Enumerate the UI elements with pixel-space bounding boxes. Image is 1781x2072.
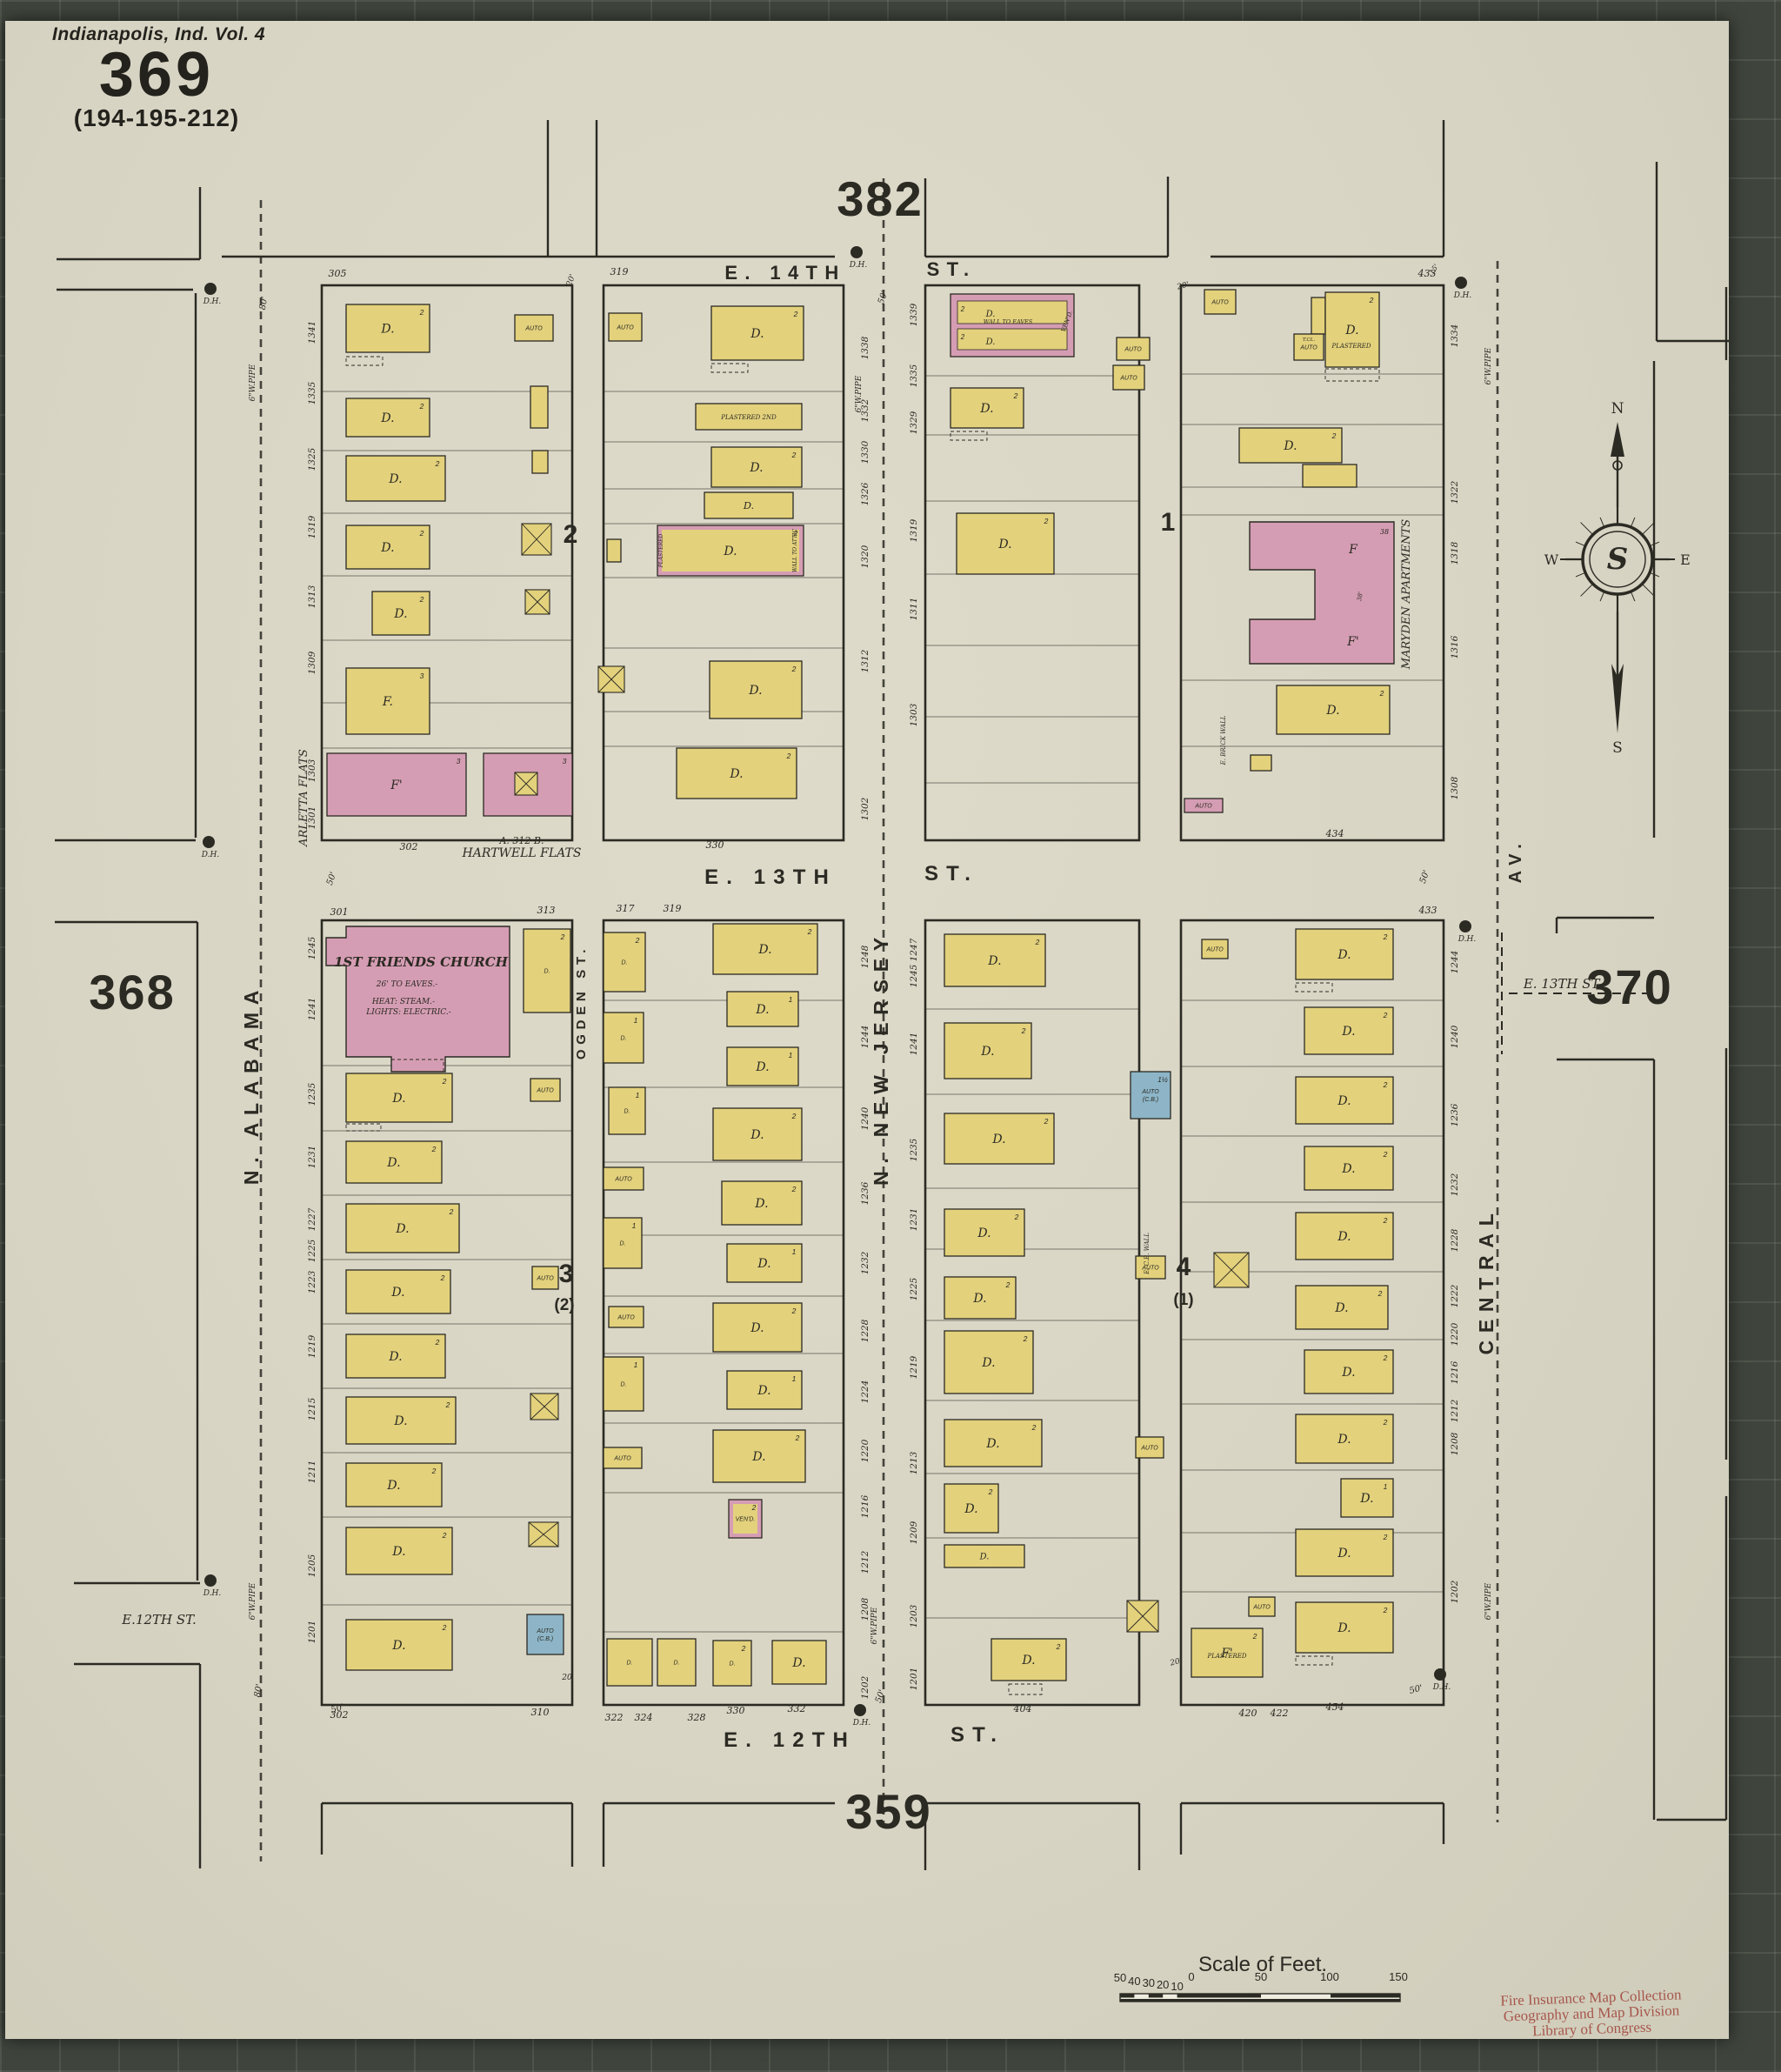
dh-hydrant-dot: [1459, 920, 1471, 932]
dwelling-label: D.: [390, 1286, 404, 1300]
house-number: 454: [1325, 1701, 1344, 1713]
house-number: 1335: [307, 381, 317, 404]
dwelling-label: D.: [1337, 1230, 1351, 1244]
block-number: 4: [1177, 1253, 1191, 1281]
adjacent-sheet-number: 359: [845, 1784, 931, 1839]
street-name: ST.: [951, 1723, 1004, 1747]
story-count: 2: [807, 927, 812, 936]
compass-north-label: N: [1611, 400, 1624, 418]
story-count: 2: [1044, 517, 1049, 525]
building-footprint: [1251, 755, 1271, 771]
story-count: 1: [792, 1374, 797, 1383]
house-number: 1211: [307, 1460, 317, 1484]
house-number: 1236: [1450, 1103, 1460, 1126]
street-name: N. NEW JERSEY: [870, 930, 892, 1186]
house-number: 1220: [860, 1439, 870, 1462]
house-number: 1216: [860, 1494, 870, 1518]
sheet-title-block: Indianapolis, Ind. Vol. 4 369 (194-195-2…: [52, 24, 261, 132]
story-count: 1: [792, 1247, 797, 1256]
dh-hydrant-label: D.H.: [203, 297, 222, 306]
house-number: 1220: [1450, 1322, 1460, 1346]
dwelling-label: D.: [386, 1156, 400, 1170]
house-number: 1228: [1450, 1228, 1460, 1252]
dh-hydrant-label: D.H.: [203, 1589, 222, 1598]
compass-east-label: E: [1680, 551, 1691, 568]
dwelling-label: D.: [1334, 1301, 1348, 1315]
story-count: 3: [563, 757, 567, 765]
compass-needle-north: [1611, 422, 1624, 457]
garage-label: AUTO: [617, 1314, 635, 1320]
house-number: 1216: [1450, 1360, 1460, 1384]
story-count: 2: [1035, 938, 1040, 946]
dwelling-label: D.: [391, 1639, 405, 1653]
story-count: 2: [988, 1487, 993, 1496]
annotation: 50': [874, 1688, 888, 1704]
garage-label: AUTO: [536, 1628, 554, 1634]
library-of-congress-stamp: Fire Insurance Map Collection Geography …: [1477, 1986, 1705, 2041]
story-count: 2: [1252, 1632, 1257, 1641]
scale-bar-segment: [1120, 1994, 1134, 1998]
dwelling-label: D.: [748, 684, 762, 698]
dh-hydrant-dot: [1455, 277, 1467, 289]
garage-label: (C.B.): [537, 1636, 553, 1642]
annotation: 20': [1175, 280, 1190, 292]
scale-tick-label: 100: [1320, 1970, 1339, 1983]
garage-label: AUTO: [1140, 1445, 1158, 1451]
house-number: 1244: [860, 1026, 870, 1049]
dwelling-label: D.: [1337, 1433, 1351, 1447]
compass-spoke: [1581, 523, 1593, 535]
annotation: WALL TO EAVES: [984, 318, 1033, 325]
house-number: 301: [330, 906, 349, 918]
annotation: PLASTERED: [1207, 1653, 1247, 1660]
dh-hydrant-dot: [854, 1704, 866, 1716]
dwelling-label: D.: [380, 411, 394, 425]
house-number: 1313: [307, 585, 317, 608]
house-number: 1329: [909, 411, 919, 434]
annotation: 6"W.PIPE: [1484, 347, 1493, 384]
house-number: 1215: [307, 1397, 317, 1420]
house-number: 1228: [860, 1319, 870, 1342]
story-count: 2: [1379, 689, 1384, 698]
house-number: 313: [537, 905, 556, 916]
dwelling-label: D.: [977, 1226, 991, 1240]
story-count: 2: [1005, 1280, 1011, 1289]
story-count: 2: [445, 1400, 450, 1409]
dwelling-label: F.: [382, 695, 393, 709]
story-count: 2: [1383, 1418, 1388, 1427]
dh-hydrant-label: D.H.: [852, 1719, 871, 1728]
scale-tick-label: 50: [1255, 1970, 1267, 1983]
annotation: 80': [258, 296, 270, 311]
story-count: 2: [793, 310, 798, 318]
house-number: 434: [1325, 828, 1344, 839]
story-count: 1: [632, 1221, 637, 1230]
story-count: 1: [1384, 1482, 1388, 1491]
house-number: 1240: [860, 1106, 870, 1130]
dwelling-label: D.: [751, 1450, 765, 1464]
story-count: 2: [449, 1207, 454, 1216]
porch-outline: [1325, 369, 1379, 381]
porch-outline: [711, 364, 748, 372]
garage-label: (C.B.): [1143, 1097, 1158, 1103]
dwelling-label: D.: [757, 943, 771, 957]
dwelling-label: D.: [386, 1479, 400, 1493]
house-number: 1202: [860, 1675, 870, 1699]
house-number: 332: [788, 1703, 806, 1714]
dwelling-label: D.: [1341, 1162, 1355, 1176]
house-number: 1202: [1450, 1580, 1460, 1603]
dwelling-label: D.: [1337, 948, 1351, 962]
story-count: 2: [435, 459, 440, 468]
compass-west-label: W: [1544, 551, 1559, 568]
story-count: 2: [1021, 1026, 1026, 1035]
compass-spoke: [1600, 592, 1604, 601]
story-count: 2: [1383, 1080, 1388, 1089]
story-count: 2: [442, 1531, 447, 1540]
scale-tick-label: 50: [1114, 1971, 1126, 1984]
house-number: 1235: [307, 1082, 317, 1106]
porch-outline: [346, 1124, 381, 1131]
dwelling-label: D.: [391, 1092, 405, 1106]
story-count: 2: [1383, 1150, 1388, 1159]
compass-spoke: [1576, 542, 1585, 546]
house-number: 1213: [909, 1451, 919, 1474]
dwelling-label: D.: [393, 1414, 407, 1428]
house-number: 1205: [307, 1554, 317, 1577]
dh-hydrant-dot: [204, 1574, 217, 1587]
house-number: 433: [1417, 268, 1437, 279]
building-footprint: [1311, 297, 1325, 334]
compass-monogram: S: [1607, 542, 1629, 577]
annotation: 50': [325, 871, 339, 886]
story-count: 2: [1014, 1213, 1019, 1221]
story-count: 2: [1383, 1216, 1388, 1225]
annotation: E. BRICK WALL: [1220, 715, 1227, 765]
house-number: 322: [605, 1712, 624, 1723]
dwelling-label: D.: [391, 1545, 405, 1559]
building-footprint: [1303, 465, 1357, 487]
story-count: 3: [420, 672, 424, 680]
story-count: 2: [741, 1644, 746, 1653]
story-count: 2: [435, 1338, 440, 1347]
story-count: 2: [560, 932, 565, 941]
dwelling-label: F': [390, 779, 403, 792]
annotation: 6"W.PIPE: [870, 1607, 879, 1644]
scale-bar-segment: [1191, 1994, 1261, 1998]
story-count: 2: [1331, 431, 1337, 440]
house-number: 1232: [860, 1251, 870, 1274]
compass-spoke: [1576, 572, 1585, 577]
dwelling-label: D.: [1283, 439, 1297, 453]
scale-tick-label: 30: [1143, 1976, 1155, 1989]
dwelling-label: D.: [395, 1222, 409, 1236]
adjacent-sheet-number: 368: [89, 965, 175, 1019]
dwelling-label: D.: [388, 472, 402, 486]
building-footprint: [957, 329, 1067, 350]
annotation: 80': [253, 1683, 265, 1698]
compass-spoke: [1600, 518, 1604, 527]
house-number: 1208: [860, 1597, 870, 1621]
house-number: 1301: [307, 806, 317, 830]
scale-tick-label: 150: [1389, 1970, 1408, 1983]
compass-spoke: [1642, 584, 1654, 596]
porch-outline: [1009, 1684, 1042, 1694]
house-number: 1308: [1450, 776, 1460, 799]
house-number: 330: [727, 1705, 745, 1716]
story-count: 1: [636, 1091, 640, 1099]
porch-outline: [1296, 983, 1332, 992]
garage-label: AUTO: [1124, 346, 1142, 352]
house-number: 317: [617, 903, 635, 914]
dwelling-label: D.: [997, 538, 1011, 551]
house-number: 1222: [1450, 1284, 1460, 1307]
house-number: 1320: [860, 545, 870, 568]
story-count: 2: [419, 308, 424, 317]
dwelling-label: D.: [750, 1128, 764, 1142]
house-number: 1212: [1450, 1399, 1460, 1422]
house-number: 1338: [860, 336, 870, 359]
house-number: 330: [706, 839, 724, 851]
block-number: (2): [554, 1296, 574, 1314]
annotation: E.12TH ST.: [121, 1612, 197, 1628]
street-name: AV.: [1506, 838, 1525, 884]
street-name: OGDEN ST.: [574, 945, 589, 1059]
dwelling-label: D.: [1021, 1654, 1035, 1668]
story-count: 2: [419, 529, 424, 538]
dwelling-label: D.: [755, 1003, 769, 1017]
porch-outline: [1296, 1656, 1332, 1665]
story-count: 2: [1023, 1334, 1028, 1343]
garage-label: D.: [674, 1660, 680, 1666]
street-name: ST.: [927, 258, 977, 280]
house-number: 1231: [307, 1146, 317, 1169]
dwelling-label: D.: [393, 607, 407, 621]
story-count: 1: [634, 1360, 638, 1369]
house-number: 1322: [1450, 480, 1460, 504]
house-number: 1208: [1450, 1432, 1460, 1455]
annotation: 6"W.PIPE: [249, 364, 257, 401]
house-number: 1241: [307, 998, 317, 1021]
house-number: 324: [635, 1712, 653, 1723]
building-footprint: [607, 539, 621, 562]
dwelling-label: D.: [1337, 1621, 1351, 1635]
dwelling-label: D.: [729, 767, 743, 781]
building-class-label: F': [1346, 635, 1359, 649]
house-number: 433: [1418, 905, 1437, 916]
scale-tick-label: 10: [1171, 1980, 1183, 1993]
annotation: LIGHTS: ELECTRIC.-: [365, 1008, 450, 1017]
dwelling-label: D.: [985, 1437, 999, 1451]
story-count: 2: [791, 1307, 797, 1315]
dh-hydrant-dot: [850, 246, 863, 258]
house-number: 1235: [909, 1138, 919, 1161]
dwelling-label: D.: [749, 461, 763, 475]
house-number: 1303: [909, 703, 919, 726]
compass-south-label: S: [1612, 739, 1623, 757]
story-count: 2: [795, 1434, 800, 1442]
house-number: 1341: [307, 321, 317, 344]
house-number: 1201: [909, 1668, 919, 1691]
house-number: 1201: [307, 1621, 317, 1644]
dwelling-label: D.: [1337, 1547, 1351, 1561]
house-number: 302: [330, 1709, 349, 1721]
annotation: PLASTERED: [1331, 343, 1371, 350]
story-count: 2: [1377, 1289, 1383, 1298]
building-footprint: [527, 1614, 564, 1654]
annotation: A. 312 B.: [498, 835, 544, 846]
house-number: 328: [688, 1712, 706, 1723]
house-number: 1227: [307, 1207, 317, 1231]
block-number: (1): [1173, 1291, 1193, 1309]
house-number: 1236: [860, 1181, 870, 1205]
dh-hydrant-label: D.H.: [1432, 1683, 1451, 1692]
story-count: 2: [791, 1185, 797, 1193]
dwelling-label: D.: [981, 1356, 995, 1370]
garage-label: AUTO: [1205, 946, 1224, 952]
dwelling-label: D.: [723, 545, 737, 558]
dwelling-label: D.: [791, 1656, 805, 1670]
block-number: 2: [564, 520, 578, 549]
dwelling-label: D.: [1325, 704, 1339, 718]
house-number: 1212: [860, 1550, 870, 1574]
story-count: 2: [960, 333, 965, 341]
garage-label: D.: [544, 968, 550, 974]
street-name: E. 13TH: [704, 866, 837, 889]
garage-label: AUTO: [1252, 1604, 1271, 1610]
dwelling-label: D.: [757, 1384, 770, 1398]
house-number: 1335: [909, 364, 919, 387]
house-number: 1232: [1450, 1173, 1460, 1196]
garage-label: D.: [621, 1035, 627, 1041]
house-number: 404: [1013, 1703, 1032, 1714]
compass-spoke: [1631, 518, 1635, 527]
dwelling-label: D.: [388, 1350, 402, 1364]
garage-label: AUTO: [1194, 803, 1212, 809]
house-number: 1334: [1450, 324, 1460, 348]
dwelling-label: D.: [1359, 1492, 1373, 1506]
story-count: 3: [457, 757, 461, 765]
annotation: 50': [1418, 869, 1432, 885]
garage-label: D.: [624, 1108, 630, 1114]
annotation: E. C.B. WALL: [1144, 1233, 1151, 1275]
porch-outline: [951, 431, 987, 440]
story-count: 2: [1369, 296, 1374, 304]
house-number: 305: [329, 268, 347, 279]
house-number: 420: [1238, 1708, 1257, 1719]
story-count: 2: [1383, 1533, 1388, 1541]
annotation: HARTWELL FLATS: [462, 846, 582, 860]
dwelling-label: D.: [991, 1133, 1005, 1146]
street-name: CENTRAL: [1475, 1206, 1498, 1354]
garage-label: AUTO: [536, 1087, 554, 1093]
street-name: ST.: [924, 862, 978, 886]
story-count: 2: [1056, 1642, 1061, 1651]
story-count: 2: [431, 1467, 437, 1475]
garage-label: D.: [620, 1240, 626, 1247]
house-number: 1309: [307, 651, 317, 674]
street-name: E. 14TH: [724, 262, 845, 284]
story-count: 1: [789, 1051, 793, 1059]
house-number: 422: [1270, 1708, 1289, 1719]
house-number: 1225: [307, 1239, 317, 1262]
story-count: 2: [791, 1112, 797, 1120]
story-count: 2: [1383, 932, 1388, 941]
house-number: 1231: [909, 1208, 919, 1232]
annotation: WALL TO ATTIC: [792, 529, 798, 572]
sheet-number: 369: [52, 45, 261, 104]
scale-bar-segment: [1331, 1994, 1400, 1998]
dwelling-label: D.: [1341, 1025, 1355, 1039]
house-number: 1241: [909, 1033, 919, 1056]
dwelling-label: D.: [380, 541, 394, 555]
house-number: 1203: [909, 1604, 919, 1628]
dh-hydrant-dot: [203, 836, 215, 848]
house-number: 1245: [307, 936, 317, 959]
story-count: 2: [791, 451, 797, 459]
house-number: 1325: [307, 447, 317, 471]
annotation: PLASTERED 2ND: [720, 414, 777, 421]
story-count: 2: [1383, 1606, 1388, 1614]
story-count: 2: [1044, 1117, 1049, 1126]
house-number: 319: [664, 903, 682, 914]
annotation: E. 13TH ST.: [1523, 976, 1602, 992]
dwelling-label: D.: [755, 1060, 769, 1074]
story-count: 2: [1013, 391, 1018, 400]
house-number: 1311: [909, 598, 919, 621]
dwelling-label: D.: [750, 327, 764, 341]
house-number: 1330: [860, 440, 870, 464]
dwelling-label: D.: [987, 954, 1001, 968]
dwelling-label: D.: [980, 1045, 994, 1059]
block-number: 1: [1161, 508, 1176, 537]
scale-bar-segment: [1149, 1994, 1163, 1998]
house-number: 302: [400, 841, 418, 852]
building-footprint: [530, 386, 548, 428]
house-number: 1319: [909, 518, 919, 542]
house-number: 1248: [860, 945, 870, 968]
story-count: 2: [1031, 1423, 1037, 1432]
house-number: 1219: [307, 1334, 317, 1358]
annotation: 50': [1408, 1683, 1424, 1696]
house-number: 1303: [307, 759, 317, 782]
annotation: 26' TO EAVES.-: [376, 980, 437, 989]
story-count: 2: [442, 1077, 447, 1086]
dwelling-label: D.: [972, 1292, 986, 1306]
dh-hydrant-label: D.H.: [849, 261, 868, 270]
compass-spoke: [1642, 523, 1654, 535]
street-name: E. 12TH: [724, 1728, 856, 1752]
sheet-page-range: (194-195-212): [52, 104, 261, 132]
house-number: 1339: [909, 303, 919, 326]
story-count: 2: [431, 1145, 437, 1153]
story-count: 2: [442, 1623, 447, 1632]
garage-label: AUTO: [1141, 1089, 1159, 1095]
dwelling-label: D.: [743, 499, 754, 511]
house-number: 1319: [307, 515, 317, 538]
garage-label: D.: [622, 959, 628, 966]
house-number: 319: [610, 266, 629, 277]
dwelling-label: D.: [979, 1552, 990, 1561]
scale-tick-label: 40: [1128, 1975, 1140, 1988]
story-count: 2: [791, 665, 797, 673]
building-footprint: [532, 451, 548, 473]
annotation: 38: [1380, 528, 1389, 536]
dwelling-label: D.: [380, 322, 394, 336]
porch-outline: [346, 357, 383, 365]
annotation: T.CL.: [1303, 338, 1315, 343]
story-count: 2: [786, 752, 791, 760]
